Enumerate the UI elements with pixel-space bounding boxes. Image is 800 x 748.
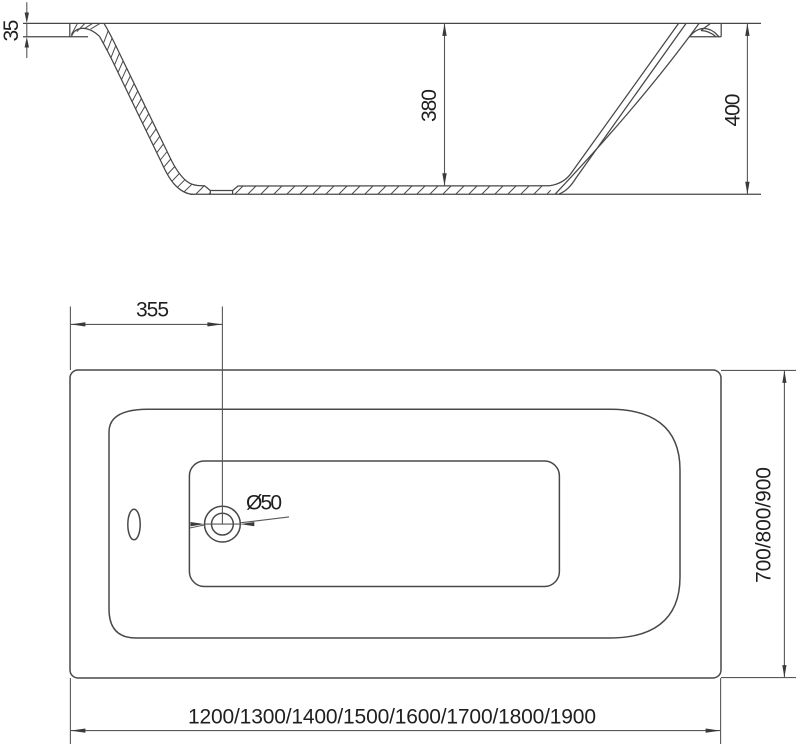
svg-text:700/800/900: 700/800/900 (753, 467, 776, 583)
svg-text:380: 380 (418, 89, 441, 122)
svg-text:355: 355 (136, 299, 169, 322)
svg-text:400: 400 (722, 94, 745, 127)
svg-text:35: 35 (0, 20, 23, 42)
svg-text:1200/1300/1400/1500/1600/1700/: 1200/1300/1400/1500/1600/1700/1800/1900 (188, 705, 596, 728)
svg-text:Ø50: Ø50 (246, 492, 282, 515)
